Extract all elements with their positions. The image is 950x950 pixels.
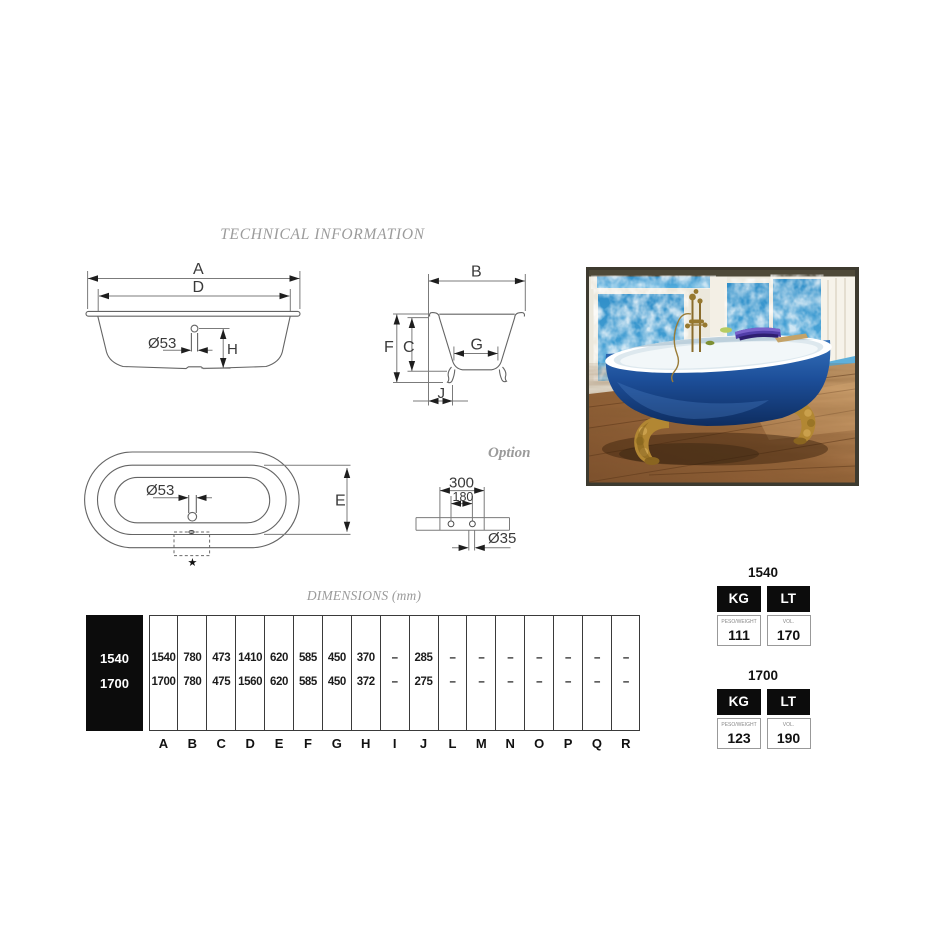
- svg-text:F: F: [384, 339, 394, 356]
- svg-text:A: A: [193, 261, 204, 278]
- svg-text:Ø35: Ø35: [488, 530, 516, 547]
- svg-text:Ø53: Ø53: [146, 482, 174, 499]
- svg-text:180: 180: [453, 490, 474, 504]
- svg-text:B: B: [471, 264, 482, 281]
- svg-text:H: H: [227, 341, 238, 358]
- svg-text:C: C: [403, 339, 415, 356]
- svg-text:E: E: [335, 493, 346, 510]
- svg-text:★: ★: [188, 557, 198, 569]
- svg-text:Ø53: Ø53: [148, 335, 176, 352]
- svg-text:300: 300: [449, 475, 474, 492]
- svg-text:J: J: [438, 385, 446, 402]
- svg-text:D: D: [193, 279, 205, 296]
- svg-text:G: G: [471, 337, 483, 354]
